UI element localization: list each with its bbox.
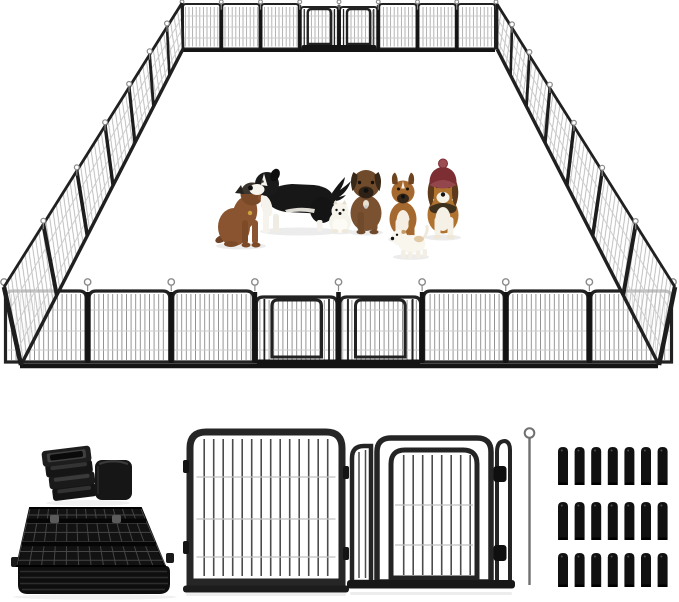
hat-pompom [439, 159, 448, 168]
ground-stakes-grid [558, 447, 668, 587]
connector-rod [525, 428, 535, 585]
ground-stake [658, 553, 668, 587]
loop-pin [103, 120, 108, 125]
ground-stake [591, 502, 601, 540]
ground-stake [624, 553, 634, 587]
ground-stake [641, 447, 651, 485]
dogs-group [214, 159, 461, 260]
dog-ear [392, 173, 398, 185]
dog-eye [335, 209, 337, 211]
fence-joint [182, 3, 183, 49]
ground-stake [624, 447, 634, 485]
dog-nose [401, 195, 405, 199]
dog-head [332, 203, 349, 220]
ground-stake [575, 553, 585, 587]
loop-pin [419, 279, 425, 285]
door-bottom-rail [302, 45, 377, 49]
stack-clip [50, 515, 59, 523]
hinge-tab [343, 466, 349, 479]
accessories-group [11, 428, 668, 600]
pen-back-wall [180, 0, 498, 50]
dog-tag [364, 205, 368, 209]
hinge-tab [183, 541, 189, 554]
loop-pin [633, 219, 638, 224]
loop-pin [219, 0, 223, 4]
dog-tail [425, 227, 428, 238]
ground-stake [608, 553, 618, 587]
right-wall-top-rail [497, 4, 675, 287]
loop-pin [600, 165, 605, 170]
loop-pin [84, 279, 90, 285]
ground-stake [591, 553, 601, 587]
dog-nose [339, 212, 342, 215]
pen-front-wall [1, 279, 676, 366]
dog-eye [397, 188, 400, 191]
ground-stake [575, 447, 585, 485]
loop-pin [548, 82, 553, 87]
ground-stake [608, 502, 618, 540]
ground-stake [608, 447, 618, 485]
loop-pin [147, 49, 152, 54]
hinge-clamp [494, 466, 507, 482]
ground-stake [558, 553, 568, 587]
door-foot-rail [347, 580, 515, 589]
loop-pin [74, 165, 79, 170]
loop-pin [127, 82, 132, 87]
dog-eye [406, 188, 409, 191]
dog-ear [342, 200, 347, 205]
loop-pin [527, 50, 532, 55]
door-panel-front-view [347, 438, 515, 595]
loop-pin [572, 120, 577, 125]
dog-nose [248, 186, 253, 191]
loop-pin [510, 22, 515, 27]
panel-foot-rail [183, 586, 349, 593]
hinge-clamp [494, 545, 507, 561]
dog-eye [358, 181, 361, 184]
loop-pin [376, 0, 380, 4]
beagle-with-hat [425, 159, 461, 241]
loop-pin [494, 0, 498, 4]
folded-panel-stack [11, 508, 177, 600]
ground-stake [641, 502, 651, 540]
playpen-product-image [0, 0, 679, 602]
loop-pin [298, 0, 302, 4]
rod-loop [525, 428, 535, 438]
dog-tail [332, 177, 351, 201]
left-wall-top-rail [4, 3, 182, 287]
dog-eye [261, 180, 264, 183]
ground-stake [558, 502, 568, 540]
loop-pin [455, 0, 459, 4]
ground-stake [658, 502, 668, 540]
rubber-foot-caps [41, 445, 132, 506]
ground-stake [591, 447, 601, 485]
single-foot-cap [95, 460, 132, 500]
hinge-tab [183, 460, 189, 473]
ground-stake [624, 502, 634, 540]
ground-stake [575, 502, 585, 540]
dog-nose [441, 192, 445, 196]
dog-eye [342, 209, 344, 211]
panel-front-view [183, 432, 349, 596]
loop-pin [503, 279, 509, 285]
stack-clip [112, 515, 121, 523]
dog-nose [391, 237, 394, 240]
dog-eye [396, 234, 398, 236]
ground-stake [641, 553, 651, 587]
loop-pin [586, 279, 592, 285]
ground-stake [558, 447, 568, 485]
dog-nose [364, 188, 369, 193]
dog-tag [248, 211, 252, 215]
loop-pin [165, 21, 170, 26]
loop-pin [335, 279, 341, 285]
dog-ear [408, 173, 414, 185]
brown-mastiff-puppy [349, 170, 383, 236]
loop-pin [259, 0, 263, 4]
ground-stake [658, 447, 668, 485]
hinge-tab [343, 547, 349, 560]
fence-joint [511, 28, 512, 76]
dog-eye [371, 181, 374, 184]
grid-wire [66, 509, 67, 565]
loop-pin [337, 0, 341, 4]
loop-pin [416, 0, 420, 4]
loop-pin [168, 279, 174, 285]
loop-pin [252, 279, 258, 285]
loop-pin [41, 218, 46, 223]
